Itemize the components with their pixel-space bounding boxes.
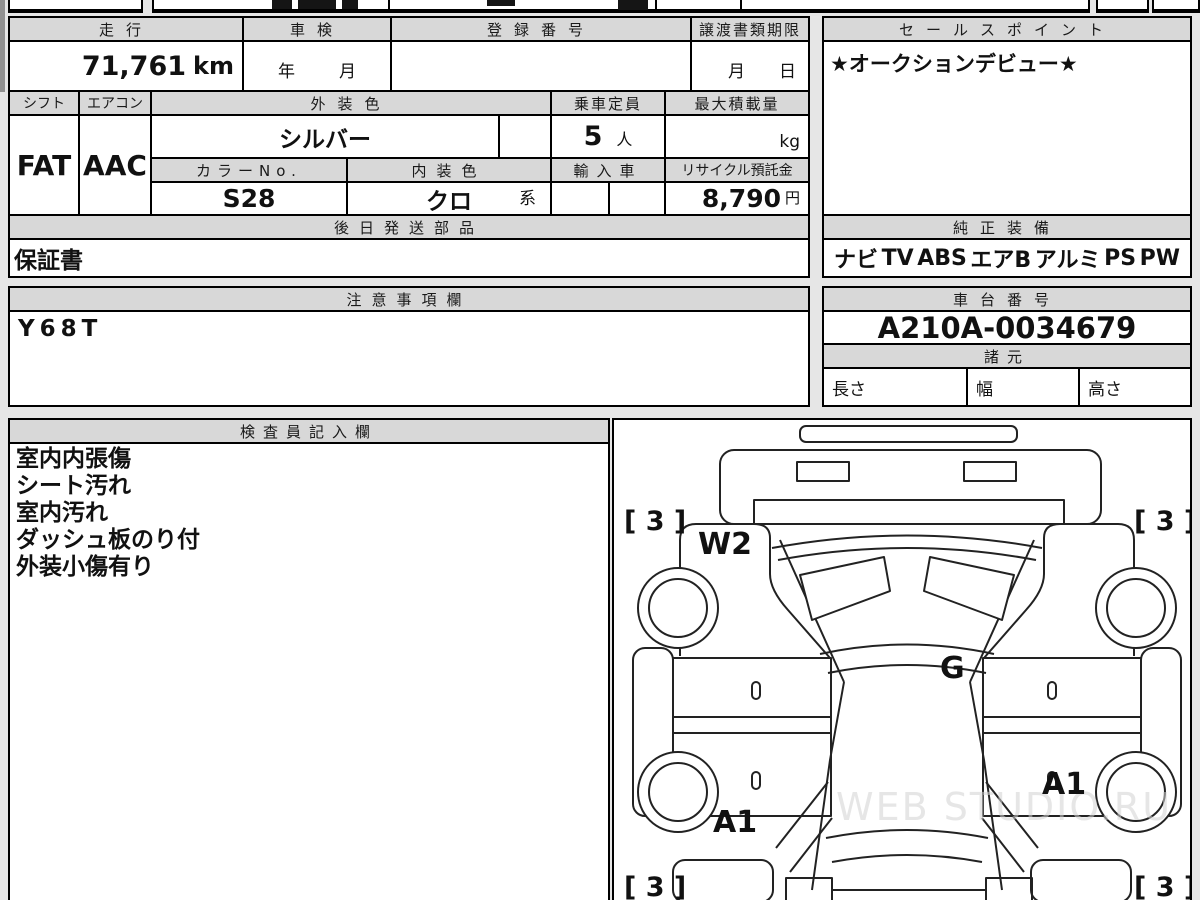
import-value-cell: [550, 181, 610, 216]
damage-mark-w2: W2: [698, 527, 752, 562]
recycle-deposit-unit: 円: [785, 187, 800, 214]
exterior-color-sub-cell: [498, 114, 552, 159]
recycle-deposit-header: リサイクル預託金: [664, 157, 810, 183]
car-damage-diagram: WEB STUDIO.RU [ 3 ] [ 3 ] W2 G A1 A1 [ 3…: [612, 418, 1192, 900]
payload-header: 最大積載量: [664, 90, 810, 116]
specs-header: 諸元: [822, 343, 1192, 369]
equipment-item: アルミ: [1035, 242, 1101, 274]
capacity-header: 乗車定員: [550, 90, 666, 116]
mileage-header: 走行: [8, 16, 244, 42]
inspector-note-line: 外装小傷有り: [16, 554, 608, 581]
cell-divider: [655, 0, 657, 9]
exterior-color-value: シルバー: [150, 114, 500, 159]
clipped-text-fragment: [298, 0, 336, 9]
equipment-item: ABS: [917, 246, 967, 271]
chassis-number-header: 車台番号: [822, 286, 1192, 312]
inspector-notes-body: 室内内張傷 シート汚れ 室内汚れ ダッシュ板のり付 外装小傷有り: [8, 442, 610, 900]
shaken-year-label: 年: [278, 57, 295, 82]
interior-color-value-cell: クロ 系: [346, 181, 552, 216]
transfer-deadline-cell: 月 日: [690, 40, 810, 92]
clipped-text-fragment: [618, 0, 648, 10]
sales-point-header: セールスポイント: [822, 16, 1192, 42]
aircon-value: AAC: [78, 114, 152, 216]
inspector-note-line: 室内内張傷: [16, 446, 608, 473]
registration-number-header: 登録番号: [390, 16, 692, 42]
transfer-deadline-header: 譲渡書類期限: [690, 16, 810, 42]
damage-mark-a1-left: A1: [713, 805, 757, 840]
shift-header: シフト: [8, 90, 80, 116]
mileage-value-cell: 71,761 km: [8, 40, 244, 92]
inspector-notes-header: 検査員記入欄: [8, 418, 610, 444]
shaken-header: 車検: [242, 16, 392, 42]
aircon-header: エアコン: [78, 90, 152, 116]
damage-mark-rear-left: [ 3 ]: [624, 872, 686, 900]
recycle-deposit-value: 8,790: [702, 184, 781, 213]
payload-value-cell: kg: [664, 114, 810, 159]
capacity-value-cell: 5 人: [550, 114, 666, 159]
cutoff-row-cell: [1152, 0, 1200, 13]
cell-divider: [740, 0, 742, 9]
interior-color-suffix: 系: [519, 184, 536, 209]
cutoff-row-cell: [152, 0, 1090, 13]
damage-mark-g: G: [940, 651, 965, 686]
cutoff-row-cell: [8, 0, 143, 13]
later-shipped-parts-header: 後日発送部品: [8, 214, 810, 240]
capacity-value: 5: [584, 121, 603, 152]
mileage-value: 71,761: [82, 51, 186, 82]
clipped-text-fragment: [342, 0, 358, 9]
transfer-day-label: 日: [779, 57, 796, 82]
payload-unit: kg: [779, 132, 800, 152]
cutoff-row-cell: [1096, 0, 1149, 13]
spec-width-cell: 幅: [966, 367, 1080, 407]
spec-length-cell: 長さ: [822, 367, 968, 407]
damage-mark-front-left: [ 3 ]: [624, 506, 686, 537]
import-value-cell: [608, 181, 666, 216]
car-top-view: WEB STUDIO.RU [ 3 ] [ 3 ] W2 G A1 A1 [ 3…: [614, 420, 1190, 900]
registration-number-cell: [390, 40, 692, 92]
equipment-item: ナビ: [834, 242, 878, 274]
interior-color-header: 内装色: [346, 157, 552, 183]
clipped-text-fragment: [487, 0, 515, 6]
auction-sheet: 走行 車検 登録番号 譲渡書類期限 71,761 km 年 月 月 日 シフト …: [0, 0, 1200, 900]
inspector-note-line: シート汚れ: [16, 473, 608, 500]
import-header: 輸入車: [550, 157, 666, 183]
clipped-text-fragment: [272, 0, 292, 9]
damage-mark-a1-right: A1: [1042, 767, 1086, 802]
mileage-unit: km: [193, 52, 234, 80]
inspector-note-line: 室内汚れ: [16, 500, 608, 527]
sales-point-value: ★オークションデビュー★: [822, 40, 1192, 216]
scan-edge-artifact: [0, 0, 5, 92]
damage-mark-front-right: [ 3 ]: [1134, 506, 1190, 537]
shaken-value-cell: 年 月: [242, 40, 392, 92]
chassis-number-value: A210A-0034679: [822, 310, 1192, 345]
spec-height-cell: 高さ: [1078, 367, 1192, 407]
equipment-item: PW: [1140, 246, 1180, 271]
shaken-month-label: 月: [339, 57, 356, 82]
notes-value: Y68T: [8, 310, 810, 407]
color-no-value: S28: [150, 181, 348, 216]
capacity-unit: 人: [616, 126, 632, 157]
later-shipped-parts-value: 保証書: [8, 238, 810, 278]
notes-header: 注意事項欄: [8, 286, 810, 312]
color-no-header: カラーNo.: [150, 157, 348, 183]
genuine-equipment-row: ナビ TV ABS エアB アルミ PS PW: [822, 238, 1192, 278]
cell-divider: [388, 0, 390, 9]
recycle-deposit-cell: 8,790 円: [664, 181, 810, 216]
inspector-note-line: ダッシュ板のり付: [16, 527, 608, 554]
shift-value: FAT: [8, 114, 80, 216]
transfer-month-label: 月: [728, 57, 745, 82]
genuine-equipment-header: 純正装備: [822, 214, 1192, 240]
equipment-item: PS: [1104, 246, 1136, 271]
exterior-color-header: 外装色: [150, 90, 552, 116]
equipment-item: TV: [882, 246, 914, 271]
equipment-item: エアB: [970, 242, 1031, 274]
damage-mark-rear-right: [ 3 ]: [1134, 872, 1190, 900]
watermark-text: WEB STUDIO.RU: [836, 785, 1172, 829]
